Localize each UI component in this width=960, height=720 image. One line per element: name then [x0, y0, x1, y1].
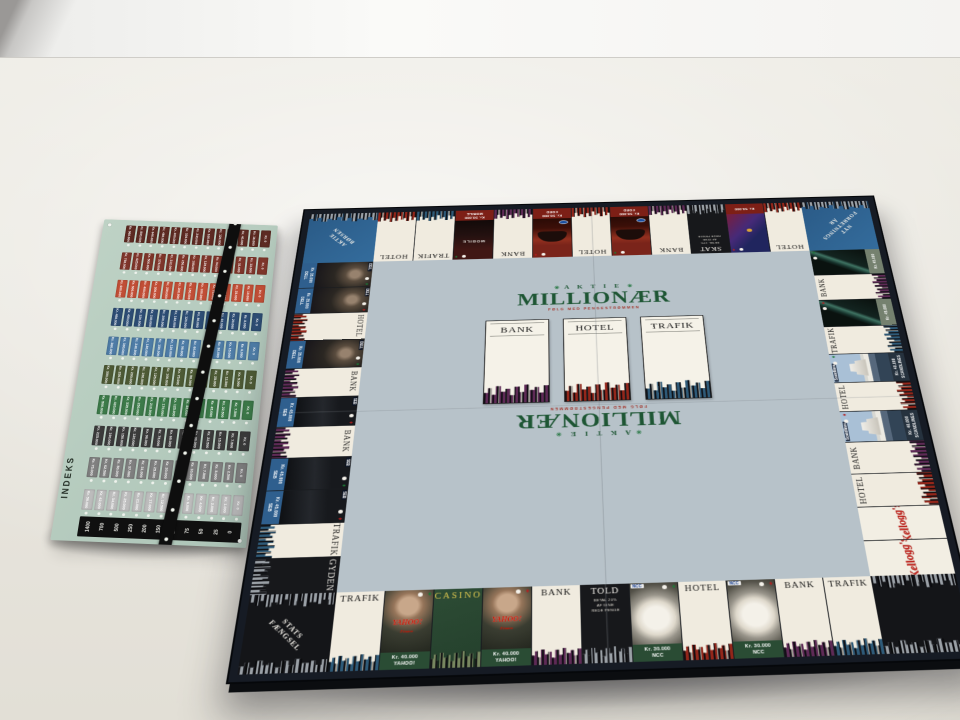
sticker-value: Kr. 160.000	[206, 229, 212, 245]
index-scale-number: 250	[127, 524, 134, 532]
price-sticker: Kr. 0	[232, 495, 245, 516]
sticker-value: Kr. 60.000	[168, 430, 175, 447]
sticker-value: Kr. 600.000	[118, 280, 125, 297]
sticker-value: Kr. 200.000	[176, 282, 183, 299]
suit-marker-icon: ♦	[526, 588, 529, 594]
sticker-value: Kr. 0	[242, 437, 248, 445]
sticker-row: Kr. 960.000Kr. 800.000Kr. 640.000Kr. 480…	[124, 225, 271, 247]
sticker-value: Kr. 400.000	[125, 308, 132, 325]
sticker-value: Kr. 150.000	[156, 338, 163, 356]
kelloggs-script: Kellogg's	[895, 539, 924, 576]
space-label: HOTEL	[353, 313, 367, 339]
price-sticker: Kr. 60.000	[189, 339, 201, 358]
brand-photo: ♦	[810, 249, 870, 274]
sticker-row: Kr. 600.000Kr. 500.000Kr. 400.000Kr. 300…	[115, 280, 266, 303]
suit-marker-icon: ♦	[842, 413, 848, 416]
sticker-value: Kr. 100.000	[164, 368, 171, 386]
price-text: Kr. 45.000	[286, 403, 294, 421]
brand-photo: YAHOO!Finans♦	[482, 587, 532, 650]
sticker-value: Kr. 160.000	[172, 310, 179, 327]
suit-marker-icon: ♦	[455, 254, 458, 258]
suit-marker-icon: ♦	[821, 302, 827, 304]
brand-photo: Scandlines♦	[829, 353, 894, 382]
price-sticker: Kr. 25.000	[148, 459, 161, 480]
board-row-bottom: TRAFIKYAHOO!Finans♦Kr. 40.000YAHOO!CASIN…	[328, 576, 885, 672]
sticker-value: Kr. 0	[251, 347, 256, 354]
price-sticker: Kr. 240.000	[192, 228, 204, 245]
space-gyden: GYDEN	[250, 556, 341, 595]
price-sticker: Kr. 5.000	[233, 370, 245, 389]
price-sticker: Kr. 200.000	[157, 309, 169, 327]
skyline-graphic	[250, 559, 274, 595]
price-sticker: Kr. 5.000	[210, 462, 223, 483]
sticker-value: Kr. 500.000	[99, 396, 107, 414]
price-text: Kr. 50.000	[465, 215, 485, 219]
marker-dot	[621, 251, 625, 254]
sticker-value: Kr. 22.500	[220, 401, 227, 418]
center-card-trafik: TRAFIK	[640, 315, 712, 400]
sticker-value: Kr. 240.000	[194, 228, 201, 244]
sticker-value: Kr. 0	[235, 501, 241, 509]
space-trafik: TRAFIK	[256, 522, 345, 559]
marker-dot	[759, 582, 764, 586]
price-sticker: Kr. 400.000	[169, 227, 181, 244]
brand-tag: SEB	[345, 458, 351, 468]
price-sticker: Kr. 2.500	[223, 462, 236, 483]
price-sticker: Kr. 335.000	[121, 396, 134, 416]
price-sticker: Kr. 640.000	[146, 226, 158, 243]
sticker-value: Kr. 7.500	[201, 464, 208, 479]
marker-dot	[833, 361, 838, 364]
price-sticker: Kr. 80.000	[192, 311, 204, 329]
price-sticker: Kr. 320.000	[134, 308, 146, 326]
sticker-value: Kr. 625.000	[134, 253, 141, 269]
space-subtext: BETAL 20%AF DINEREDE PENGE	[581, 597, 630, 614]
price-sticker: Kr. 240.000	[146, 309, 158, 327]
price-sticker: Kr. 15.000	[214, 430, 227, 450]
price-sticker: Kr. 125.000	[169, 398, 182, 418]
card-rule	[490, 335, 544, 337]
sticker-value: Kr. 16.000	[251, 231, 257, 245]
sticker-value: Kr. 312.000	[168, 254, 175, 271]
space-label: GYDEN	[323, 557, 340, 593]
brand-photo: ♦	[610, 216, 651, 256]
corner-stats-fængsel: STATSFÆNGSEL	[237, 593, 336, 675]
sticker-value: Kr. 42.000	[97, 491, 105, 509]
price-text: Kr. 50.000	[734, 207, 754, 211]
price-sticker: Kr. 75.000	[153, 428, 166, 448]
skyline-graphic	[763, 202, 802, 213]
brand-logo: Kellogg's	[857, 505, 946, 541]
sticker-value: Kr. 250.000	[179, 255, 186, 272]
brand-tag: NCC	[630, 584, 643, 589]
space-ship: Scandlines♦Kr. 40.000SCANDLINES	[829, 353, 910, 383]
sticker-value: Kr. 320.000	[137, 309, 144, 326]
marker-dot	[844, 420, 849, 424]
photo-text: MOBILE	[454, 239, 493, 243]
space-kellogg-s: Kellogg's	[857, 505, 947, 542]
skyline-graphic	[417, 211, 456, 222]
sticker-value: Kr. 150.000	[187, 283, 194, 300]
price-sticker: Kr. 200.000	[125, 366, 138, 385]
price-sticker: Kr. 225.000	[91, 426, 104, 446]
background-wall	[0, 0, 960, 58]
sticker-value: Kr. 75.000	[89, 459, 97, 476]
space-suit: DELL♦Kr. 35.000DELL	[299, 262, 374, 288]
sticker-value: Kr. 50.000	[84, 491, 92, 509]
space-hotel: HOTEL	[290, 312, 367, 341]
sticker-value: Kr. 75.000	[176, 369, 183, 385]
photo-text: YAHOO!	[383, 617, 432, 626]
skyline-graphic	[801, 201, 870, 211]
space-label: BANK	[652, 246, 691, 255]
space-sebdark: SEB♦Kr. 45.000SEB	[277, 395, 359, 427]
price-sticker: Kr. 15.000	[224, 340, 236, 359]
sticker-value: Kr. 17.000	[147, 493, 154, 511]
price-sticker: Kr. 200.000	[173, 282, 185, 300]
price-band: Kr. 40.000YAHOO!	[481, 648, 531, 667]
sticker-value: Kr. 125.000	[152, 368, 159, 386]
sticker-value: Kr. 375.000	[156, 254, 163, 271]
price-sticker: Kr. 16.000	[248, 230, 259, 247]
price-sticker: Kr. 31.000	[234, 256, 246, 274]
space-suit: DELL♦Kr. 35.000DELL	[286, 339, 365, 369]
photo-text: YAHOO!	[482, 614, 531, 623]
price-sticker: Kr. 120.000	[181, 310, 193, 328]
price-sticker: Kr. 8.000	[239, 312, 251, 330]
price-sticker: Kr. 75.000	[173, 368, 186, 387]
sticker-value: Kr. 125.000	[202, 256, 209, 273]
sticker-value: Kr. 15.000	[227, 342, 233, 358]
price-sticker: Kr. 170.000	[157, 397, 170, 417]
kelloggs-script: Kellogg's	[888, 505, 917, 542]
sticker-value: Kr. 25.000	[122, 492, 129, 510]
skyline-graphic	[683, 642, 734, 661]
sticker-value: Kr. 500.000	[145, 254, 152, 271]
marker-dot	[516, 589, 521, 593]
skyline-graphic	[494, 209, 532, 220]
price-sticker: Kr. 4.000	[194, 493, 207, 514]
card-rule	[646, 330, 700, 332]
suit-marker-icon: ♦	[672, 584, 676, 590]
space-label: HOTEL	[770, 243, 810, 252]
sticker-value: Kr. 37.500	[126, 460, 133, 477]
space-card: ♦Kr. 50.000	[725, 203, 771, 252]
board-frame: ✳ A K T I E ✳ MILLIONÆR FØLG MED PENGEST…	[226, 195, 960, 684]
price-sticker: Kr. 21.000	[131, 491, 144, 512]
price-sticker: Kr. 10.000	[242, 284, 254, 302]
sticker-value: Kr. 320.000	[183, 228, 190, 244]
sticker-value: Kr. 640.000	[149, 227, 156, 243]
price-sticker: Kr. 240.000	[130, 337, 143, 356]
skyline-graphic	[914, 472, 938, 505]
space-ship: Scandlines♦Kr. 40.000SCANDLINES	[840, 410, 924, 443]
sticker-value: Kr. 180.000	[144, 338, 151, 356]
brand-tag: DELL	[367, 262, 372, 271]
sticker-value: Kr. 2.000	[210, 497, 217, 513]
board-logo-bottom: ✳ A K T I E ✳ MILLIONÆR FØLG MED PENGEST…	[468, 402, 731, 441]
skyline-graphic	[281, 369, 301, 398]
index-scale-number: 500	[113, 524, 120, 532]
sticker-row: Kr. 75.000Kr. 62.500Kr. 50.000Kr. 37.500…	[86, 457, 247, 483]
price-sticker: Kr. 100.000	[161, 368, 174, 387]
price-sticker: Kr. 400.000	[138, 280, 150, 298]
sticker-value: Kr. 20.000	[164, 461, 171, 478]
brand-tag: Scandlines	[831, 363, 839, 381]
brand-photo: NCC♦	[726, 579, 781, 642]
price-sticker: Kr. 150.000	[116, 427, 129, 447]
price-sticker: Kr. 210.000	[145, 397, 158, 417]
space-trafik: TRAFIK	[328, 591, 385, 672]
corner-blank	[870, 574, 960, 654]
sticker-value: Kr. 250.000	[164, 282, 171, 299]
flourish-icon: ✳	[636, 429, 642, 435]
sticker-value: Kr. 15.000	[217, 432, 224, 449]
price-sticker: Kr. 300.000	[150, 281, 162, 299]
corner-nyt-forretnings-år: NYTFORRETNINGSÅR	[801, 201, 880, 251]
sticker-value: Kr. 500.000	[129, 280, 136, 297]
brand-logo: Kellogg's	[864, 539, 955, 576]
price-text: Kr. 40.000	[392, 654, 419, 660]
price-sticker: Kr. 420.000	[108, 396, 121, 416]
brand-tag: SEB	[352, 397, 357, 406]
sticker-value: Kr. 6.000	[185, 496, 192, 512]
price-sticker: Kr. 62.500	[99, 457, 112, 478]
index-scale-number: 200	[142, 525, 149, 533]
space-label: HOTEL	[678, 581, 727, 594]
marker-dot	[542, 253, 546, 256]
brand-photo: SEB♦	[279, 489, 348, 524]
skyline-graphic	[907, 441, 931, 472]
sticker-row: Kr. 750.000Kr. 625.000Kr. 500.000Kr. 375…	[120, 252, 269, 275]
price-sticker: Kr. 0	[257, 257, 268, 275]
sticker-value: Kr. 360.000	[109, 337, 116, 355]
space-mobile: MOBILE♦Kr. 50.000MOBILE	[453, 210, 494, 260]
marker-dot	[662, 585, 667, 589]
space-label: CASINO	[434, 588, 483, 601]
sticker-value: Kr. 400.000	[172, 228, 179, 244]
price-text: Kr. 35.000	[307, 268, 314, 283]
sticker-value: Kr. 120.000	[131, 428, 138, 447]
sticker-value: Kr. 750.000	[122, 253, 129, 269]
sticker-value: Kr. 240.000	[132, 337, 139, 355]
space-label: TRAFIK	[327, 522, 344, 556]
brand-photo: ♦	[533, 218, 572, 258]
sticker-value: Kr. 0	[263, 235, 268, 242]
brand-photo: YAHOO!Finans♦	[380, 590, 433, 653]
space-kellogg-s: Kellogg's	[864, 539, 955, 576]
sticker-value: Kr. 800.000	[138, 226, 145, 242]
index-scale-number: 75	[185, 528, 192, 534]
sticker-value: Kr. 0	[245, 407, 251, 415]
brand-photo: DELL♦	[314, 262, 373, 288]
price-sticker: Kr. 250.000	[177, 254, 189, 272]
sticker-value: Kr. 150.000	[140, 367, 147, 385]
brand-tag: SEB	[341, 490, 347, 500]
board-play-area: ✳ A K T I E ✳ MILLIONÆR FØLG MED PENGEST…	[237, 201, 960, 675]
index-scale-number: 700	[99, 523, 106, 531]
sticker-value: Kr. 8.000	[242, 315, 248, 329]
suit-marker-icon: ♦	[769, 581, 773, 587]
marker-dot	[365, 277, 369, 280]
index-scale-number: 50	[199, 528, 206, 534]
price-sticker: Kr. 625.000	[131, 253, 143, 271]
space-label: BANK	[532, 585, 580, 598]
price-sticker: Kr. 500.000	[127, 280, 139, 298]
space-label: TRAFIK	[823, 576, 872, 589]
space-label: HOTEL	[834, 383, 851, 412]
sticker-value: Kr. 13.000	[248, 258, 254, 273]
price-sticker: Kr. 800.000	[135, 226, 147, 243]
price-text: Kr. 40.000	[493, 651, 519, 657]
sticker-value: Kr. 6.000	[239, 343, 245, 357]
index-scale-number: 1400	[85, 521, 93, 532]
price-sticker: Kr. 360.000	[106, 336, 119, 355]
brand-tag: NCC	[727, 581, 741, 586]
suit-marker-icon: ♦	[340, 484, 347, 487]
skyline-graphic	[882, 325, 904, 352]
price-sticker: Kr. 7.500	[230, 400, 242, 420]
price-sticker: Kr. 250.000	[113, 366, 126, 385]
sticker-value: Kr. 2.500	[226, 465, 233, 480]
suit-marker-icon: ♦	[535, 253, 538, 257]
space-yahoo: YAHOO!Finans♦Kr. 40.000YAHOO!	[378, 590, 434, 671]
sticker-value: Kr. 190.000	[106, 427, 114, 446]
price-sticker: Kr. 75.000	[86, 457, 100, 478]
price-text: Kr. 45.000	[271, 497, 280, 517]
suit-marker-icon: ♦	[336, 517, 343, 520]
sticker-value: Kr. 80.000	[195, 312, 202, 327]
sticker-value: Kr. 0	[254, 318, 259, 325]
sticker-value: Kr. 300.000	[104, 366, 112, 384]
price-sticker: Kr. 45.000	[205, 399, 217, 419]
price-sticker: Kr. 37.500	[123, 458, 136, 479]
space-subtext: BETAL 10%AF DINEREDE PENGE	[690, 234, 730, 245]
game-board: ✳ A K T I E ✳ MILLIONÆR FØLG MED PENGEST…	[226, 195, 960, 684]
marker-dot	[349, 414, 354, 418]
price-sticker: Kr. 312.000	[165, 254, 177, 272]
sticker-value: Kr. 21.000	[134, 493, 141, 511]
photo-scene: INDEKS Kr. 960.000Kr. 800.000Kr. 640.000…	[0, 0, 960, 720]
space-bank: BANK	[845, 441, 931, 475]
corner-aktie-børsen: AKTIEBØRSEN	[303, 213, 379, 264]
price-sticker: Kr. 2.000	[206, 494, 219, 515]
sticker-value: Kr. 31.000	[139, 460, 146, 477]
brand-photo: ♦	[819, 299, 881, 326]
suit-marker-icon: ♦	[364, 283, 370, 285]
price-sticker: Kr. 600.000	[115, 280, 127, 298]
price-sticker: Kr. 22.500	[202, 430, 215, 450]
sticker-value: Kr. 20.000	[230, 313, 236, 328]
space-hotel: HOTEL	[851, 472, 939, 507]
price-sticker: Kr. 480.000	[158, 227, 170, 244]
sticker-value: Kr. 400.000	[141, 281, 148, 298]
skyline-graphic	[290, 314, 310, 341]
price-band: Kr. 40.000YAHOO!	[379, 651, 430, 670]
skyline-graphic	[783, 639, 835, 658]
sticker-value: Kr. 25.000	[234, 285, 240, 300]
suit-marker-icon: ♦	[347, 421, 353, 424]
space-sebdark: SEB♦Kr. 45.000SEB	[261, 488, 348, 524]
sticker-value: Kr. 25.000	[212, 371, 219, 387]
index-scale-number: 25	[213, 529, 220, 535]
price-sticker: Kr. 0	[260, 230, 271, 247]
sticker-value: Kr. 7.500	[233, 403, 239, 418]
sticker-row: Kr. 50.000Kr. 42.000Kr. 34.000Kr. 25.000…	[81, 489, 244, 516]
price-sticker: Kr. 22.500	[217, 400, 229, 420]
sticker-value: Kr. 22.500	[205, 432, 212, 449]
price-sticker: Kr. 6.000	[236, 341, 248, 360]
price-sticker: Kr. 42.000	[94, 489, 108, 510]
card-skyline	[645, 379, 711, 399]
price-sticker: Kr. 120.000	[128, 427, 141, 447]
price-sticker: Kr. 150.000	[184, 282, 196, 300]
skyline-graphic	[870, 274, 891, 299]
skyline-graphic	[272, 428, 293, 459]
space-skat: SKATBETAL 10%AF DINEREDE PENGE	[687, 204, 732, 253]
space-bank: BANK	[493, 209, 533, 259]
space-bank: BANK	[648, 205, 691, 254]
suit-marker-icon: ♦	[354, 363, 360, 365]
suit-marker-icon: ♦	[811, 252, 817, 254]
sticker-row: Kr. 500.000Kr. 420.000Kr. 335.000Kr. 250…	[96, 395, 254, 420]
center-card-bank: BANK	[483, 319, 550, 404]
photo-subtext: Finans	[382, 629, 431, 635]
sticker-value: Kr. 200.000	[128, 367, 135, 385]
suit-marker-icon: ♦	[614, 251, 617, 255]
brand-tag: Scandlines	[842, 422, 850, 442]
price-sticker: Kr. 0	[254, 285, 266, 303]
sticker-value: Kr. 125.000	[172, 398, 179, 416]
sticker-value: Kr. 50.000	[114, 460, 121, 477]
sticker-value: Kr. 1.000	[222, 497, 229, 513]
brand-name: NCC	[652, 653, 664, 659]
sticker-value: Kr. 30.000	[215, 341, 221, 357]
suit-marker-icon: ♦	[732, 248, 735, 252]
sticker-value: Kr. 188.000	[191, 255, 198, 272]
price-text: Kr. 45.000	[882, 304, 890, 320]
skyline-graphic	[430, 650, 481, 669]
price-sticker: Kr. 300.000	[118, 336, 131, 355]
photo-subtext: Finans	[482, 625, 531, 631]
sticker-value: Kr. 0	[248, 376, 253, 384]
brand-name: YAHOO!	[495, 658, 516, 664]
sticker-value: Kr. 225.000	[94, 426, 102, 445]
suit-marker-icon: ♦	[428, 591, 432, 597]
brand-name: FORD	[546, 210, 558, 213]
skyline-graphic	[256, 524, 279, 559]
sticker-value: Kr. 5.000	[213, 464, 220, 479]
brand-photo: DELL♦	[302, 339, 365, 368]
brand-name: MOBILE	[467, 212, 483, 216]
price-sticker: Kr. 60.000	[165, 429, 178, 449]
space-trafik: TRAFIK	[413, 211, 456, 261]
sticker-value: Kr. 240.000	[148, 309, 155, 326]
price-sticker: Kr. 0	[235, 463, 248, 484]
price-sticker: Kr. 150.000	[137, 367, 150, 386]
skyline-graphic	[309, 213, 379, 223]
price-sticker: Kr. 25.000	[231, 284, 243, 302]
price-sticker: Kr. 250.000	[161, 281, 173, 299]
brand-name: FORD	[623, 208, 635, 211]
skyline-graphic	[870, 574, 958, 590]
price-sticker: Kr. 90.000	[140, 428, 153, 448]
price-text: Kr. 30.000	[644, 646, 670, 652]
card-skyline	[565, 381, 630, 401]
price-sticker: Kr. 750.000	[120, 252, 132, 270]
space-hotel: HOTEL	[834, 381, 917, 412]
index-scale-number: 0	[227, 531, 233, 534]
